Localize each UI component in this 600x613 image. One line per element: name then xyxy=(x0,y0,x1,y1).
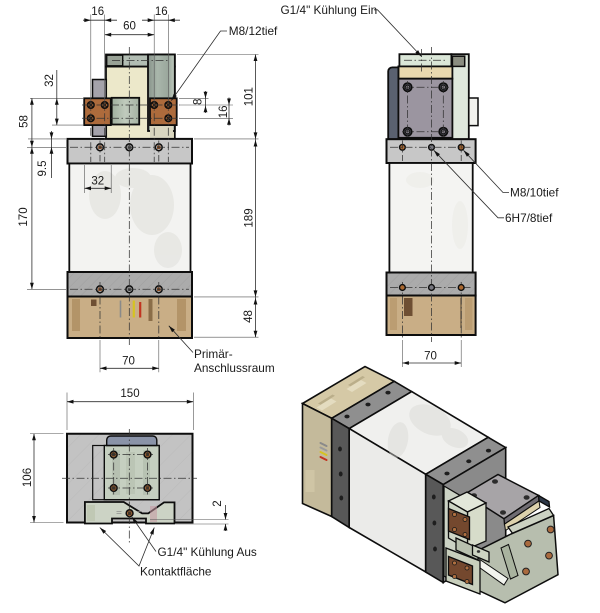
svg-text:150: 150 xyxy=(120,388,139,400)
svg-text:9.5: 9.5 xyxy=(37,161,49,177)
svg-text:189: 189 xyxy=(243,208,255,227)
svg-text:32: 32 xyxy=(44,74,56,87)
svg-text:106: 106 xyxy=(22,468,34,487)
svg-text:101: 101 xyxy=(243,87,255,106)
svg-text:8: 8 xyxy=(192,99,204,105)
svg-text:48: 48 xyxy=(243,310,255,323)
svg-text:M8/12tief: M8/12tief xyxy=(229,24,278,38)
svg-text:32: 32 xyxy=(91,175,104,187)
svg-text:16: 16 xyxy=(155,6,168,18)
svg-text:170: 170 xyxy=(18,207,30,226)
svg-text:G1/4" Kühlung Ein: G1/4" Kühlung Ein xyxy=(281,3,378,17)
svg-text:Primär-: Primär- xyxy=(194,347,233,361)
svg-text:6H7/8tief: 6H7/8tief xyxy=(505,211,553,225)
svg-text:60: 60 xyxy=(123,21,136,33)
svg-text:M8/10tief: M8/10tief xyxy=(510,186,559,200)
svg-text:Anschlussraum: Anschlussraum xyxy=(194,361,275,375)
svg-text:16: 16 xyxy=(218,105,230,118)
svg-text:Kontaktfläche: Kontaktfläche xyxy=(140,565,212,579)
svg-text:G1/4" Kühlung Aus: G1/4" Kühlung Aus xyxy=(158,545,257,559)
svg-text:16: 16 xyxy=(91,6,104,18)
svg-text:70: 70 xyxy=(122,356,135,368)
svg-text:58: 58 xyxy=(19,115,31,128)
svg-text:70: 70 xyxy=(424,351,437,363)
svg-text:2: 2 xyxy=(212,500,224,506)
